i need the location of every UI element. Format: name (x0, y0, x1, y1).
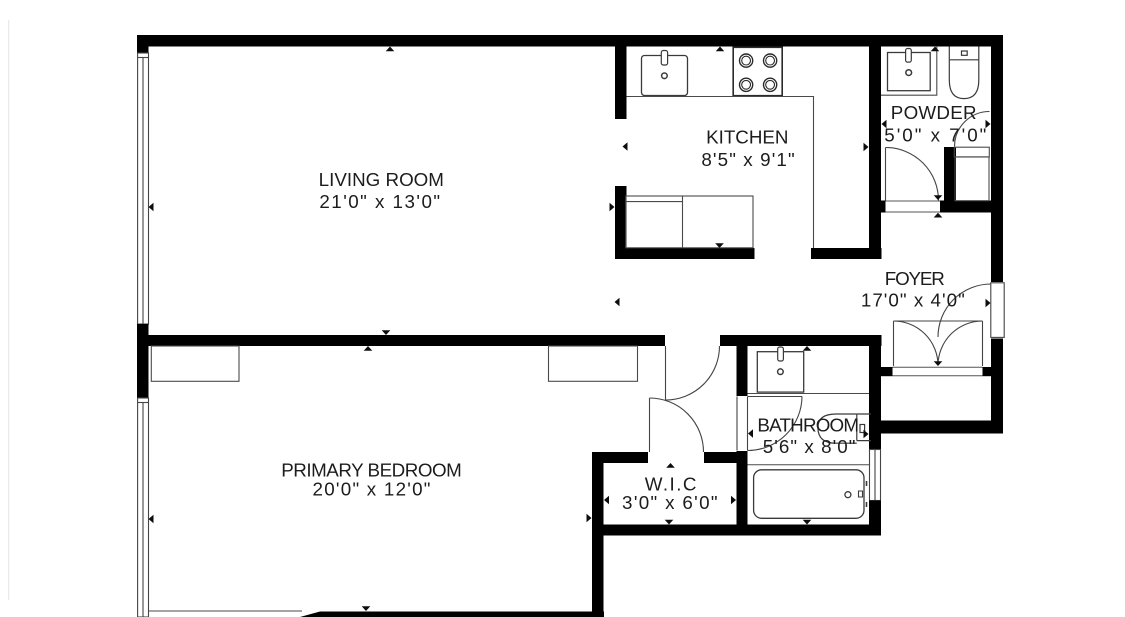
svg-text:FOYER: FOYER (885, 268, 945, 289)
svg-text:PRIMARY BEDROOM: PRIMARY BEDROOM (281, 460, 462, 481)
svg-text:20'0" x 12'0": 20'0" x 12'0" (313, 479, 431, 500)
svg-text:BATHROOM: BATHROOM (757, 415, 859, 436)
svg-text:17'0" x 4'0": 17'0" x 4'0" (861, 290, 965, 311)
svg-text:5'0" x 7'0": 5'0" x 7'0" (884, 125, 986, 146)
svg-text:3'0" x 6'0": 3'0" x 6'0" (622, 492, 718, 513)
svg-text:LIVING ROOM: LIVING ROOM (319, 169, 444, 190)
svg-text:8'5" x 9'1": 8'5" x 9'1" (701, 149, 794, 170)
svg-text:5'6" x 8'0": 5'6" x 8'0" (763, 436, 856, 457)
svg-text:KITCHEN: KITCHEN (706, 127, 788, 148)
svg-text:POWDER: POWDER (891, 102, 977, 123)
svg-text:21'0" x 13'0": 21'0" x 13'0" (319, 191, 440, 212)
